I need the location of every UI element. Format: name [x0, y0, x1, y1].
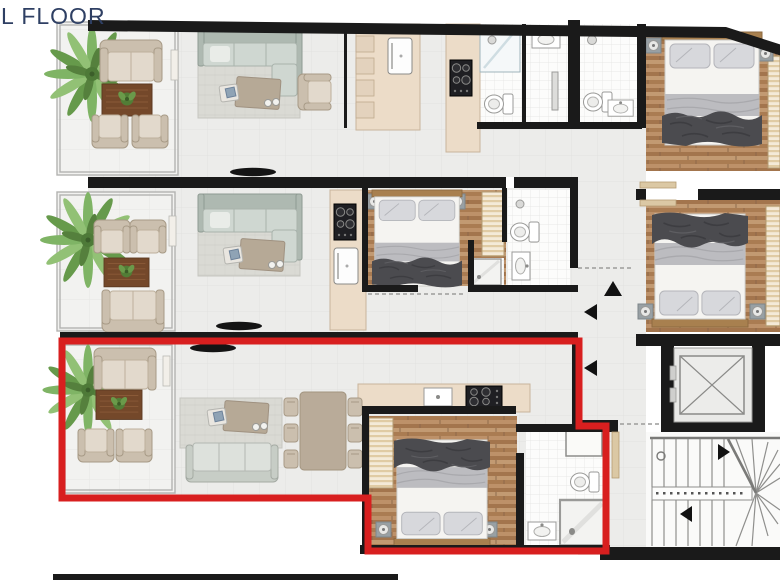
bed	[662, 32, 762, 147]
dining-chair	[284, 398, 298, 416]
dining-chair	[348, 450, 362, 468]
balcony-door	[169, 216, 176, 246]
coffee-rug	[102, 84, 152, 116]
elevator	[670, 348, 752, 422]
sofa	[186, 443, 278, 482]
loveseat	[100, 40, 162, 82]
floor-plan-svg: L FLOOR	[0, 0, 780, 580]
cabinet	[356, 80, 374, 96]
toilet	[571, 472, 600, 492]
wall	[636, 189, 646, 200]
exterior-wall-bottom	[600, 547, 780, 560]
cabinet	[356, 58, 374, 74]
wall	[362, 188, 368, 288]
wall	[468, 285, 578, 292]
cabinet	[356, 102, 374, 118]
tv	[190, 344, 236, 352]
wall	[477, 122, 642, 129]
cabinet	[356, 36, 374, 52]
shower-head	[516, 200, 524, 208]
shower-head	[488, 36, 496, 44]
dining-chair	[348, 398, 362, 416]
bed	[652, 213, 748, 328]
stair-rail	[652, 487, 752, 500]
wall	[362, 406, 516, 414]
armchair	[78, 429, 114, 462]
wall	[636, 334, 780, 346]
toilet	[511, 222, 540, 242]
floor-plan: L FLOOR	[0, 0, 780, 580]
nightstand	[638, 304, 653, 319]
tv	[230, 168, 276, 176]
shower	[560, 500, 605, 546]
balcony-door	[171, 50, 178, 80]
wardrobe	[768, 56, 780, 168]
armchair	[94, 220, 130, 253]
wardrobe	[369, 418, 393, 488]
exterior-wall-bottom	[53, 574, 398, 580]
nightstand	[376, 522, 391, 537]
wall	[468, 240, 474, 292]
lounge-chair	[298, 74, 331, 110]
armchair	[132, 115, 168, 148]
wardrobe	[482, 192, 504, 256]
wall	[502, 188, 507, 242]
wall	[514, 177, 578, 188]
sink	[528, 522, 556, 540]
armchair	[130, 220, 166, 253]
wall	[637, 24, 646, 128]
bed	[394, 438, 490, 546]
sink	[608, 100, 633, 116]
armchair	[92, 115, 128, 148]
wall	[568, 20, 580, 128]
fridge	[334, 248, 358, 284]
armchair	[116, 429, 152, 462]
loveseat	[94, 348, 156, 390]
fridge	[388, 38, 412, 74]
floor-plan-title: L FLOOR	[1, 3, 106, 29]
bed	[372, 190, 462, 287]
wall	[516, 453, 524, 551]
elevator-door	[670, 366, 676, 380]
dining-table	[300, 392, 346, 470]
door-leaf	[612, 432, 619, 478]
wall	[362, 285, 418, 292]
tv	[216, 322, 262, 330]
wardrobe	[766, 206, 780, 326]
door-leaf	[640, 200, 676, 206]
faucet	[436, 395, 440, 399]
nightstand	[750, 304, 765, 319]
stove	[450, 60, 472, 96]
wall	[698, 189, 780, 200]
toilet	[485, 94, 514, 114]
nightstand	[646, 38, 661, 53]
wall	[88, 177, 506, 188]
wall	[344, 24, 347, 128]
coffee-rug	[104, 258, 149, 287]
wall	[570, 188, 578, 268]
shower-head	[588, 36, 597, 45]
coffee-rug	[96, 390, 142, 419]
sink	[512, 252, 530, 280]
loveseat	[102, 290, 164, 332]
dining-chair	[348, 424, 362, 442]
wall	[522, 24, 526, 122]
shower	[471, 259, 501, 285]
stove	[466, 386, 502, 408]
stove	[334, 204, 356, 240]
door-leaf	[640, 182, 676, 188]
elevator-door	[670, 388, 676, 402]
washing-machine	[566, 430, 602, 456]
dining-chair	[284, 424, 298, 442]
elevator-wall	[752, 346, 765, 430]
balcony-door	[163, 356, 170, 386]
dining-chair	[284, 450, 298, 468]
radiator	[552, 72, 558, 110]
